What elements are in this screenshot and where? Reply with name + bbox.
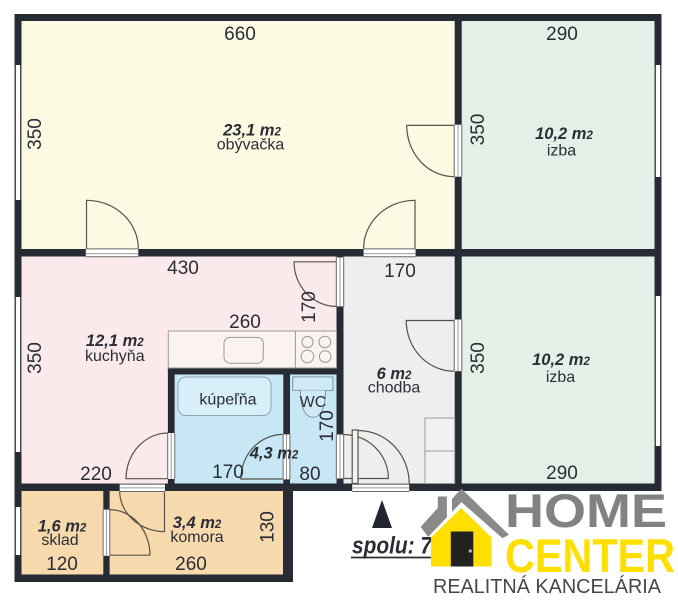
svg-text:170: 170 — [212, 462, 244, 483]
svg-text:sklad: sklad — [41, 532, 78, 549]
svg-text:4,3 m2: 4,3 m2 — [249, 445, 299, 463]
svg-text:290: 290 — [546, 24, 578, 45]
svg-text:izba: izba — [547, 143, 576, 160]
svg-text:80: 80 — [299, 464, 320, 485]
svg-text:spolu: 7: spolu: 7 — [352, 533, 433, 560]
svg-text:170: 170 — [299, 291, 320, 323]
svg-text:260: 260 — [229, 312, 261, 333]
svg-text:REALITNÁ KANCELÁRIA: REALITNÁ KANCELÁRIA — [433, 575, 662, 598]
svg-text:220: 220 — [80, 464, 112, 485]
svg-text:350: 350 — [25, 118, 46, 150]
svg-text:350: 350 — [468, 114, 489, 146]
svg-text:kuchyňa: kuchyňa — [85, 348, 145, 365]
svg-text:170: 170 — [384, 261, 416, 282]
svg-text:komora: komora — [170, 529, 223, 546]
svg-text:120: 120 — [46, 554, 78, 575]
svg-text:290: 290 — [546, 463, 578, 484]
svg-text:130: 130 — [258, 511, 279, 543]
svg-text:10,2 m2: 10,2 m2 — [535, 125, 593, 143]
svg-text:chodba: chodba — [368, 380, 421, 397]
svg-text:izba: izba — [546, 369, 575, 386]
svg-text:obývačka: obývačka — [217, 137, 285, 154]
svg-text:260: 260 — [175, 554, 207, 575]
svg-text:660: 660 — [224, 24, 256, 45]
svg-text:350: 350 — [468, 342, 489, 374]
svg-text:10,2 m2: 10,2 m2 — [532, 351, 590, 369]
svg-text:430: 430 — [167, 258, 199, 279]
svg-text:350: 350 — [25, 342, 46, 374]
svg-text:WC: WC — [300, 394, 327, 411]
svg-text:kúpeľňa: kúpeľňa — [199, 392, 256, 409]
svg-text:170: 170 — [317, 410, 338, 442]
svg-text:CENTER: CENTER — [505, 529, 675, 582]
